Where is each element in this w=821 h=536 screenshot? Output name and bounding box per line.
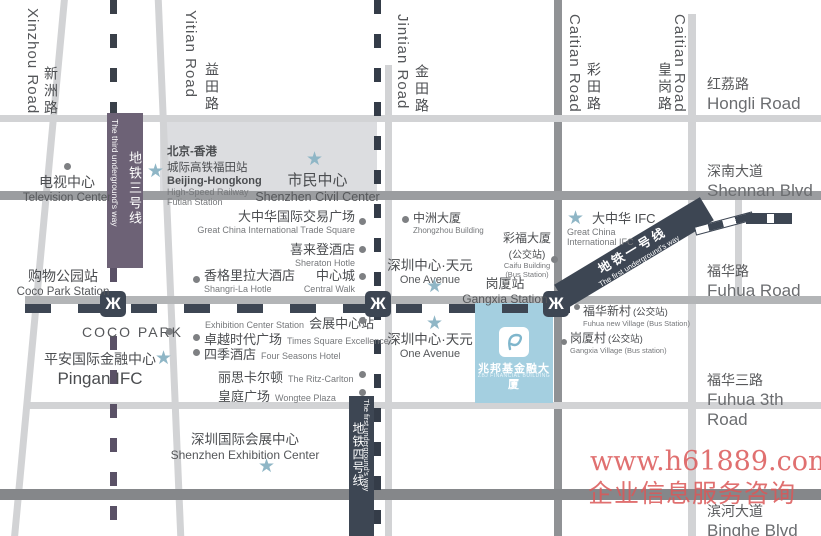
poi-dot: [551, 256, 558, 263]
star-icon: ★: [155, 349, 172, 368]
landmark-coco-park-station: 购物公园站 Coco Park Station: [2, 266, 124, 298]
label-huanggang-en: Caitian Road: [671, 14, 688, 113]
landmark-gangxia-station: 岗厦站 Gangxia Station: [445, 273, 565, 306]
landmark-one-avenue-lower: 深圳中心·天元 One Avenue: [380, 328, 480, 360]
landmark-gc-ifc: 大中华 IFC Great China International IFC: [567, 208, 656, 247]
label-shennan: 深南大道 Shennan Blvd: [707, 161, 813, 201]
poi-dot: [359, 218, 366, 225]
landmark-ritz-carlton: 丽思卡尔顿 The Ritz-Carlton: [218, 367, 354, 386]
location-map: 兆邦基金融大厦 ZBJ FINANCIAL BUILDING The third…: [0, 0, 821, 536]
landmark-four-seasons: 四季酒店 Four Seasons Hotel: [204, 344, 341, 363]
metro-line4-label-en: The first underground's way: [362, 399, 371, 491]
label-caitian-en: Caitian Road: [566, 14, 583, 113]
star-icon: ★: [306, 150, 323, 169]
poi-dot: [166, 328, 173, 335]
label-xinzhou-cn: 新洲路: [41, 66, 61, 117]
metro-line3-track-top: [110, 0, 117, 113]
poi-dot: [402, 216, 409, 223]
poi-dot: [64, 163, 71, 170]
landmark-tv-center: 电视中心 Television Center: [6, 172, 128, 204]
zbj-building-name-en: ZBJ FINANCIAL BUILDING: [475, 373, 553, 379]
star-icon: ★: [426, 277, 443, 296]
label-fuhua: 福华路 Fuhua Road: [707, 261, 801, 301]
landmark-sheraton: 喜来登酒店 Sheraton Hotle: [235, 239, 355, 268]
watermark-text: 企业信息服务咨询: [588, 474, 796, 510]
poi-dot: [561, 339, 567, 345]
poi-dot: [574, 304, 580, 310]
landmark-gangxia-village: 岗厦村 (公交站) Gangxia Village (Bus station): [570, 329, 667, 355]
poi-dot: [359, 389, 366, 396]
metro-line1-terminus: [746, 213, 792, 224]
label-yitian-en: Yitian Road: [182, 10, 199, 98]
building-logo-icon: [499, 327, 529, 357]
landmark-wongtee-plaza: 皇庭广场 Wongtee Plaza: [218, 386, 336, 405]
zbj-building-block: 兆邦基金融大厦 ZBJ FINANCIAL BUILDING: [475, 303, 553, 403]
poi-dot: [359, 317, 366, 324]
star-icon: ★: [147, 162, 164, 181]
poi-dot: [193, 349, 200, 356]
landmark-fuhua-village: 福华新村 (公交站) Fuhua new Village (Bus Statio…: [583, 302, 690, 328]
label-caitian-cn: 彩田路: [584, 62, 604, 113]
poi-dot: [359, 246, 366, 253]
label-yitian-cn: 益田路: [202, 62, 222, 113]
poi-dot: [193, 334, 200, 341]
label-xinzhou-en: Xinzhou Road: [24, 8, 41, 114]
landmark-caifu: 彩福大厦 (公交站) Caifu Building (Bus Station): [487, 229, 567, 279]
landmark-sz-exhibition-center: 深圳国际会展中心 Shenzhen Exhibition Center: [140, 428, 350, 462]
poi-dot: [359, 371, 366, 378]
landmark-pingan-ifc: 平安国际金融中心 Pingan IFC: [30, 349, 170, 389]
landmark-gc-trade-square: 大中华国际交易广场 Great China International Trad…: [135, 206, 355, 235]
poi-dot: [359, 273, 366, 280]
metro-logo-glyph: Ж: [370, 294, 385, 314]
star-icon: ★: [258, 457, 275, 476]
label-jintian-cn: 金田路: [412, 64, 432, 115]
label-hongli: 红荔路 Hongli Road: [707, 74, 801, 114]
landmark-civil-center: 市民中心 Shenzhen Civil Center: [240, 169, 395, 204]
watermark-url: www.h61889.com: [590, 446, 821, 477]
metro-line4-band: 地铁四号线 The first underground's way: [349, 396, 374, 536]
label-fuhua3: 福华三路 Fuhua 3th Road: [707, 370, 821, 430]
landmark-central-walk: 中心城 Central Walk: [255, 265, 355, 294]
zbj-logo-badge: [499, 327, 529, 357]
poi-dot: [193, 276, 200, 283]
road-fuhua3: [25, 402, 821, 409]
road-fuhua: [25, 296, 821, 304]
landmark-zhongzhou: 中洲大厦 Zhongzhou Building: [413, 209, 484, 235]
label-jintian-en: Jintian Road: [394, 14, 411, 109]
